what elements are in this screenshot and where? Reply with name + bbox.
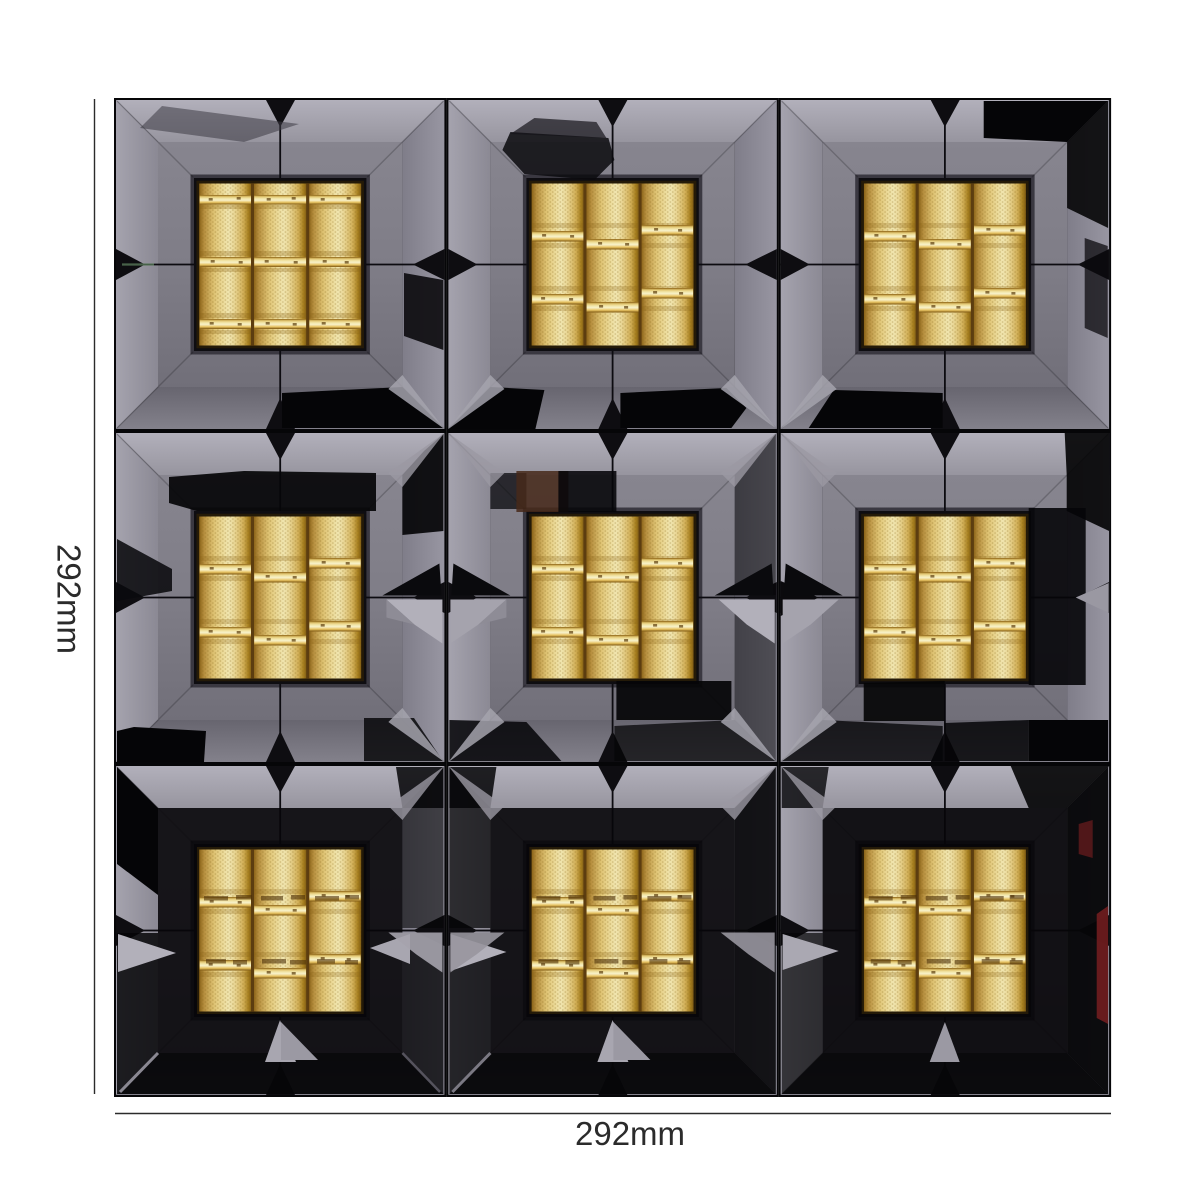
svg-text:292mm: 292mm xyxy=(51,544,88,654)
svg-text:292mm: 292mm xyxy=(575,1115,685,1152)
